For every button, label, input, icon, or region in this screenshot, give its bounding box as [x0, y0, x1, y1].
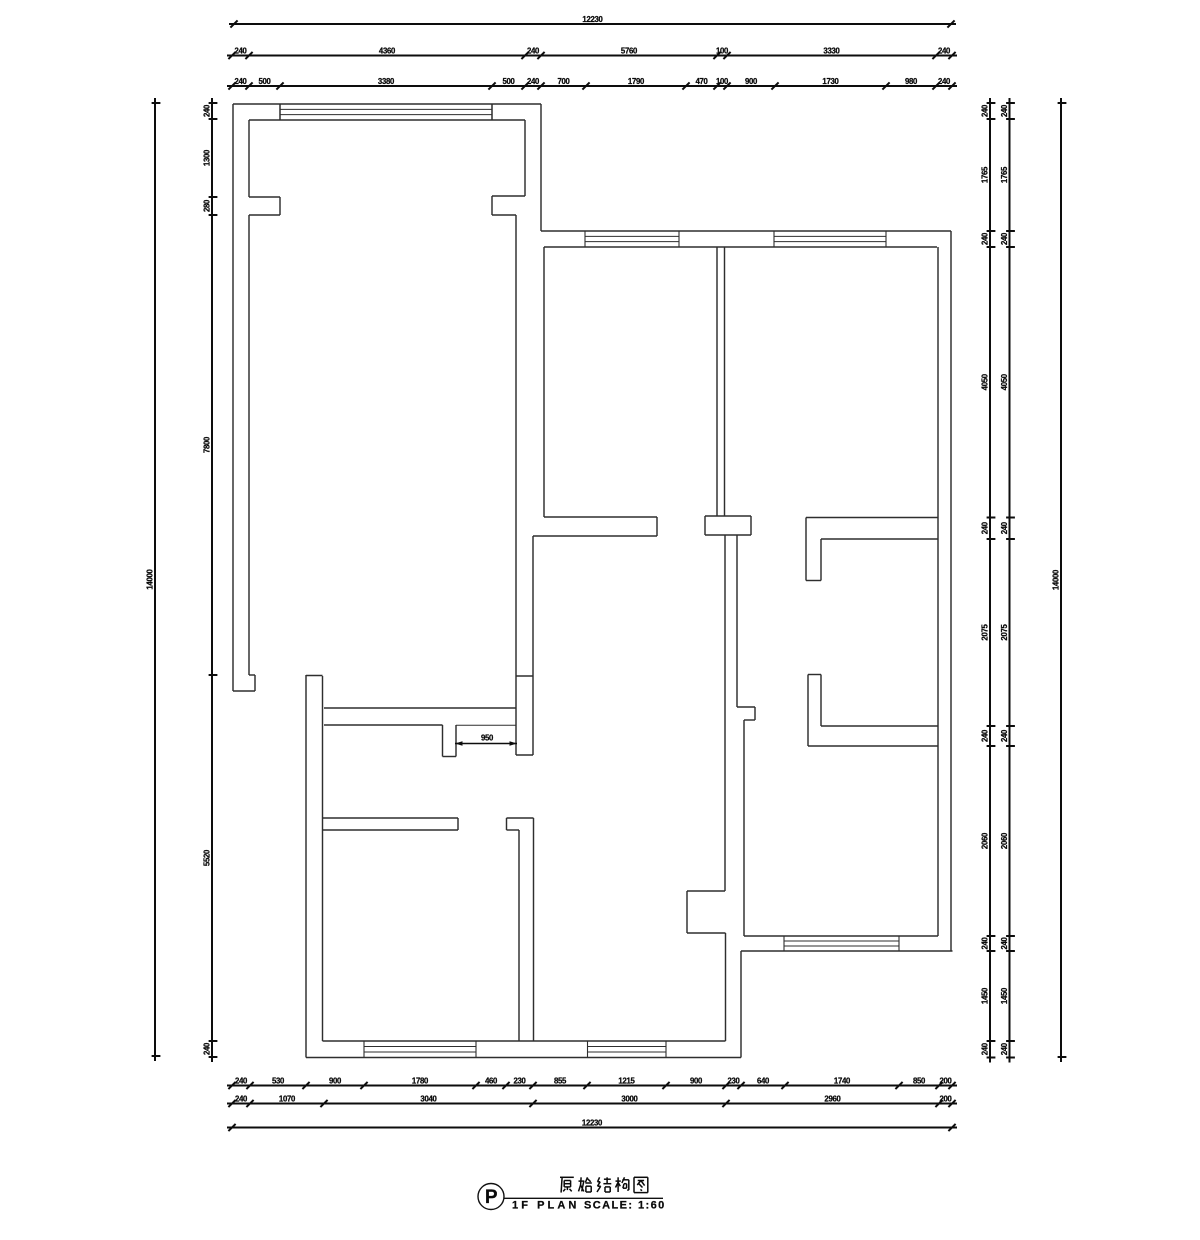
svg-text:950: 950 [481, 734, 494, 743]
svg-text:2060: 2060 [1000, 832, 1009, 849]
svg-text:1780: 1780 [412, 1077, 429, 1086]
svg-text:470: 470 [695, 77, 708, 86]
svg-text:240: 240 [1000, 521, 1009, 534]
svg-text:2060: 2060 [980, 832, 989, 849]
svg-text:3330: 3330 [823, 47, 840, 56]
svg-text:200: 200 [939, 1077, 952, 1086]
svg-text:900: 900 [745, 77, 758, 86]
svg-text:1450: 1450 [980, 987, 989, 1004]
svg-text:1765: 1765 [1000, 166, 1009, 183]
svg-text:240: 240 [980, 232, 989, 245]
svg-text:240: 240 [202, 104, 211, 117]
svg-text:12230: 12230 [582, 1119, 603, 1128]
svg-text:900: 900 [690, 1077, 703, 1086]
svg-text:240: 240 [1000, 1042, 1009, 1055]
svg-text:240: 240 [235, 1077, 248, 1086]
svg-text:855: 855 [554, 1077, 567, 1086]
svg-text:280: 280 [202, 199, 211, 212]
svg-text:240: 240 [980, 1042, 989, 1055]
svg-text:1070: 1070 [279, 1095, 296, 1104]
svg-text:12230: 12230 [582, 15, 603, 24]
svg-text:240: 240 [980, 104, 989, 117]
svg-text:100: 100 [716, 77, 729, 86]
svg-text:240: 240 [234, 77, 247, 86]
svg-text:240: 240 [980, 729, 989, 742]
svg-text:14000: 14000 [145, 568, 154, 589]
svg-text:460: 460 [485, 1077, 498, 1086]
svg-text:700: 700 [557, 77, 570, 86]
svg-text:3040: 3040 [420, 1095, 437, 1104]
svg-text:1790: 1790 [628, 77, 645, 86]
svg-text:240: 240 [938, 77, 951, 86]
svg-text:1740: 1740 [834, 1077, 851, 1086]
svg-text:4050: 4050 [1000, 373, 1009, 390]
svg-text:240: 240 [980, 521, 989, 534]
svg-text:240: 240 [1000, 104, 1009, 117]
svg-text:4360: 4360 [379, 47, 396, 56]
svg-text:5520: 5520 [202, 849, 211, 866]
svg-text:240: 240 [1000, 936, 1009, 949]
svg-text:640: 640 [757, 1077, 770, 1086]
svg-text:240: 240 [235, 1095, 248, 1104]
svg-text:SCALE: 1:60: SCALE: 1:60 [584, 1200, 664, 1212]
svg-text:980: 980 [905, 77, 918, 86]
svg-text:5760: 5760 [621, 47, 638, 56]
svg-text:240: 240 [234, 47, 247, 56]
svg-text:2075: 2075 [1000, 623, 1009, 640]
svg-text:1215: 1215 [618, 1077, 635, 1086]
svg-text:14000: 14000 [1051, 569, 1060, 590]
svg-text:200: 200 [939, 1095, 952, 1104]
svg-text:100: 100 [716, 47, 729, 56]
svg-text:P: P [485, 1187, 498, 1208]
svg-text:850: 850 [913, 1077, 926, 1086]
svg-text:230: 230 [727, 1077, 740, 1086]
svg-text:1450: 1450 [1000, 987, 1009, 1004]
svg-text:240: 240 [980, 936, 989, 949]
svg-text:240: 240 [1000, 232, 1009, 245]
svg-text:1730: 1730 [822, 77, 839, 86]
svg-text:900: 900 [329, 1077, 342, 1086]
svg-text:240: 240 [938, 47, 951, 56]
svg-text:7800: 7800 [202, 436, 211, 453]
svg-text:2960: 2960 [824, 1095, 841, 1104]
svg-text:1765: 1765 [980, 166, 989, 183]
svg-text:1300: 1300 [202, 149, 211, 166]
svg-text:240: 240 [527, 77, 540, 86]
svg-text:500: 500 [502, 77, 515, 86]
svg-text:240: 240 [202, 1042, 211, 1055]
svg-text:2075: 2075 [980, 623, 989, 640]
svg-text:4050: 4050 [980, 373, 989, 390]
svg-text:240: 240 [1000, 729, 1009, 742]
svg-text:3000: 3000 [621, 1095, 638, 1104]
svg-text:3380: 3380 [378, 77, 395, 86]
svg-text:500: 500 [258, 77, 271, 86]
svg-text:530: 530 [272, 1077, 285, 1086]
svg-text:230: 230 [513, 1077, 526, 1086]
svg-text:240: 240 [527, 47, 540, 56]
